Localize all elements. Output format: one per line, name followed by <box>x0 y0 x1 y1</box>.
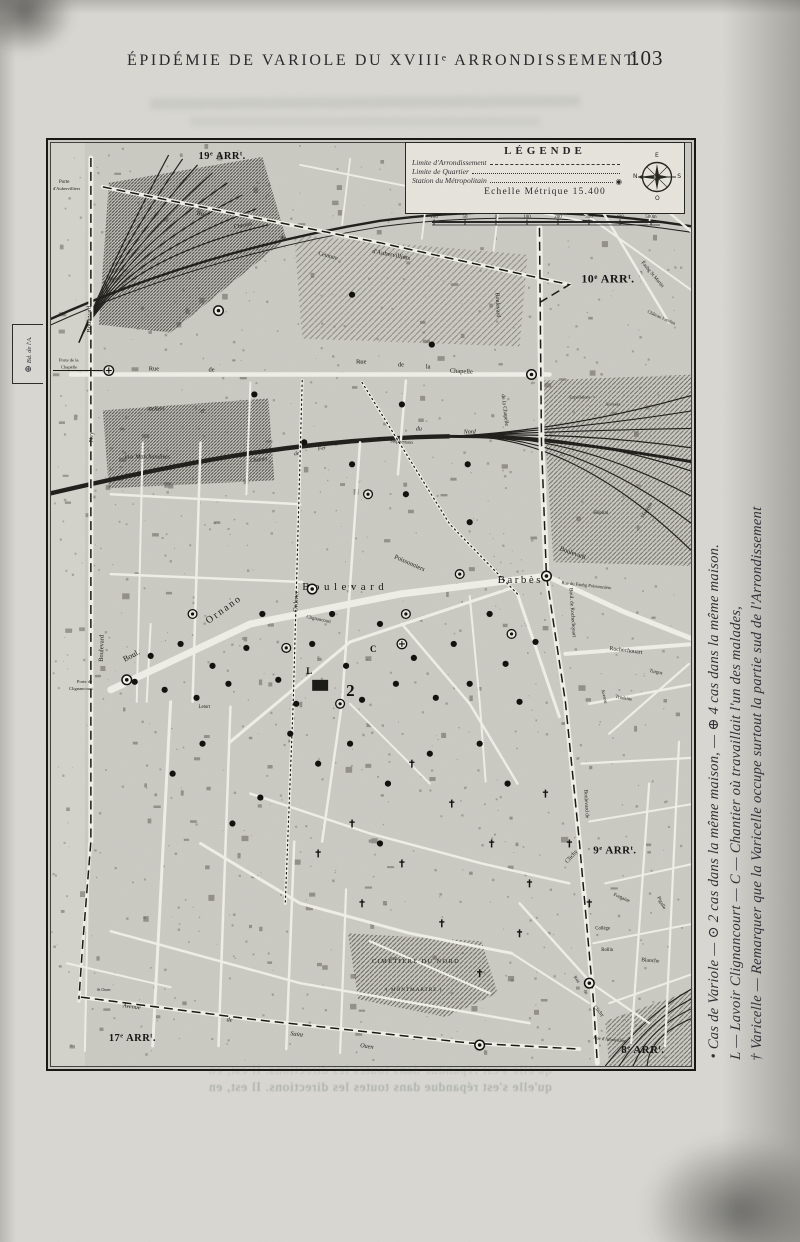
variole-case-dot <box>451 641 457 647</box>
variole-case-dot <box>487 611 493 617</box>
edge-shadow-left <box>0 0 16 1242</box>
svg-text:100: 100 <box>430 215 438 220</box>
compass-rose: N E S O <box>634 154 680 200</box>
variole-case-dot <box>429 341 435 347</box>
street-label: Letort <box>199 705 211 710</box>
map-annotation-letter: C <box>370 644 376 654</box>
street-label: Nord <box>463 429 476 435</box>
margin-tab-text: ⊕Bd. de l'A. <box>23 336 34 373</box>
street-label: Boulevard <box>86 305 93 333</box>
dotted-line-sample <box>490 182 614 183</box>
key-note-line: L — Lavoir Clignancourt — C — Chantier o… <box>726 264 748 1060</box>
variole-case-dot <box>343 663 349 669</box>
street-label: Boulevard <box>98 634 106 662</box>
variole-case-dot <box>349 292 355 298</box>
variole-case-dot <box>275 677 281 683</box>
paris-18e-map: Ported'AubervilliersRued'AubervilliersSe… <box>51 143 691 1066</box>
svg-text:100: 100 <box>523 215 531 220</box>
street-label: de <box>226 1016 233 1024</box>
verso-showthrough-text-faint: qu'elle s'est répandue dans toutes les d… <box>130 1062 630 1078</box>
corner-smudge-bottomright <box>644 1136 800 1242</box>
metro-station-icon: ◉ <box>615 178 622 185</box>
street-label: aux Marchandises <box>125 453 171 460</box>
variole-case-dot <box>132 679 138 685</box>
map-frame: Ported'AubervilliersRued'AubervilliersSe… <box>46 138 696 1071</box>
corner-smudge-topleft <box>0 0 74 54</box>
svg-text:400: 400 <box>616 215 624 220</box>
dashed-line-sample <box>490 164 620 165</box>
margin-tab-label: Bd. de l'A. <box>26 336 33 363</box>
quad-case-icon: ⊕ <box>23 365 33 373</box>
variole-case-dot <box>465 461 471 467</box>
svg-text:200: 200 <box>554 215 562 220</box>
compass-icon <box>634 154 680 200</box>
legend-item-metro-station: Station du Métropolitain ◉ <box>412 176 622 185</box>
street-label: la <box>426 364 431 371</box>
variole-case-dot <box>477 741 483 747</box>
variole-case-dot <box>293 701 299 707</box>
variole-case-dot <box>385 781 391 787</box>
street-label: Clignancourt <box>69 686 94 691</box>
compass-north-label: N <box>633 173 638 180</box>
street-label: ( MONTMARTRE ) <box>386 986 442 993</box>
arrondissement-label: 17e​ ARRt​. <box>109 1033 156 1044</box>
street-label: Rue <box>149 366 160 373</box>
variole-case-dot <box>377 621 383 627</box>
compass-west-label: O <box>655 195 660 202</box>
street-label: de <box>280 235 286 242</box>
legend-item-label: Station du Métropolitain <box>412 176 487 185</box>
street-label: Expéditions <box>569 394 590 399</box>
map-annotation-letter: L <box>306 666 312 676</box>
street-label: Chapelle <box>450 368 473 376</box>
dotted-line-sample <box>472 173 620 174</box>
variole-case-dot <box>193 695 199 701</box>
street-label: Rollin <box>601 948 614 953</box>
scale-bar-graphic: 100500100200300400500m <box>428 213 666 229</box>
variole-case-dot <box>532 639 538 645</box>
street-label: du <box>416 426 422 432</box>
street-label: CIMETIÈRE DU NORD <box>372 957 460 965</box>
street-label: Barbès <box>498 574 543 586</box>
variole-case-dot <box>403 491 409 497</box>
variole-case-dot <box>301 439 307 445</box>
variole-case-dot <box>199 741 205 747</box>
variole-case-dot <box>359 697 365 703</box>
street-label: Ordener <box>292 590 300 612</box>
svg-text:50: 50 <box>463 215 469 220</box>
page-title: ÉPIDÉMIE DE VARIOLE DU XVIIIᵉ ARRONDISSE… <box>127 52 642 70</box>
street-label: Porte de la <box>59 358 79 363</box>
variole-case-dot <box>427 751 433 757</box>
street-label: St Ouen <box>97 987 111 992</box>
street-label: de <box>398 362 404 369</box>
ink-bleedthrough-streak <box>150 95 580 109</box>
variole-case-dot <box>347 741 353 747</box>
variole-case-dot <box>229 820 235 826</box>
scanned-page: ÉPIDÉMIE DE VARIOLE DU XVIIIᵉ ARRONDISSE… <box>0 0 800 1242</box>
key-note-line: • Cas de Variole — ⊙ 2 cas dans la même … <box>704 263 726 1059</box>
variole-case-dot <box>349 461 355 467</box>
map-legend: LÉGENDE Limite d'Arrondissement Limite d… <box>405 142 685 214</box>
variole-case-dot <box>287 731 293 737</box>
variole-case-dot <box>393 681 399 687</box>
variole-case-dot <box>377 840 383 846</box>
street-label: Chapelle <box>61 365 77 370</box>
variole-case-dot <box>504 781 510 787</box>
fortifications-zone <box>51 143 85 1066</box>
street-label: d'Aubervilliers <box>53 186 80 191</box>
verso-showthrough-text: qu'elle s'est répandue dans toutes les d… <box>90 1079 670 1095</box>
legend-item-label: Limite de Quartier <box>412 167 469 176</box>
street-label: Collège <box>595 926 610 931</box>
street-label: Ney <box>88 431 95 443</box>
variole-case-dot <box>148 653 154 659</box>
svg-text:300: 300 <box>585 215 593 220</box>
variole-case-dot <box>251 391 257 397</box>
legend-item-arrondissement-limit: Limite d'Arrondissement <box>412 158 622 167</box>
variole-case-dot <box>467 519 473 525</box>
compass-east-label: E <box>655 152 659 159</box>
variole-case-dot <box>257 794 263 800</box>
edge-shadow-top <box>0 0 800 14</box>
ink-bleedthrough-streak <box>190 117 540 126</box>
arrondissement-label: 19e​ ARRt​. <box>199 151 246 162</box>
variole-case-dot <box>209 663 215 669</box>
variole-case-dot <box>329 611 335 617</box>
street-label: Boulevard <box>494 292 501 317</box>
variole-case-dot <box>259 611 265 617</box>
svg-text:500m: 500m <box>645 215 657 220</box>
variole-case-dot <box>502 661 508 667</box>
street-label: de <box>209 367 215 374</box>
street-label: Ateliers <box>146 406 166 412</box>
map-annotation-letter: 2 <box>346 681 354 700</box>
variole-case-dot <box>162 687 168 693</box>
handwritten-key-note: • Cas de Variole — ⊙ 2 cas dans la même … <box>704 263 769 1061</box>
legend-item-label: Limite d'Arrondissement <box>412 158 487 167</box>
variole-case-dot <box>178 641 184 647</box>
variole-case-dot <box>243 645 249 651</box>
variole-case-dot <box>411 655 417 661</box>
street-label: et <box>201 408 206 414</box>
variole-case-dot <box>225 681 231 687</box>
variole-case-dot <box>516 699 522 705</box>
street-label: Arrivées <box>605 401 620 406</box>
compass-south-label: S <box>677 173 681 180</box>
chantier-block <box>312 680 328 691</box>
arrondissement-label: 10e​ ARRt​. <box>581 272 634 286</box>
street-label: Hôpital <box>593 511 609 516</box>
svg-text:0: 0 <box>495 215 498 220</box>
metric-scale-bar: 100500100200300400500m <box>428 213 666 229</box>
variole-case-dot <box>309 641 315 647</box>
variole-case-dot <box>399 401 405 407</box>
variole-case-dot <box>315 761 321 767</box>
legend-item-quartier-limit: Limite de Quartier <box>412 167 622 176</box>
map-margin-tab: ⊕Bd. de l'A. <box>12 324 43 384</box>
variole-case-dot <box>170 771 176 777</box>
street-label: Porte de <box>77 679 92 684</box>
variole-case-dot <box>467 681 473 687</box>
page-number: 103 <box>629 46 664 71</box>
key-note-line: † Varicelle — Remarquer que la Varicelle… <box>747 265 769 1061</box>
street-label: Rue <box>356 359 367 366</box>
street-label: Porte <box>59 180 70 185</box>
variole-case-dot <box>433 695 439 701</box>
